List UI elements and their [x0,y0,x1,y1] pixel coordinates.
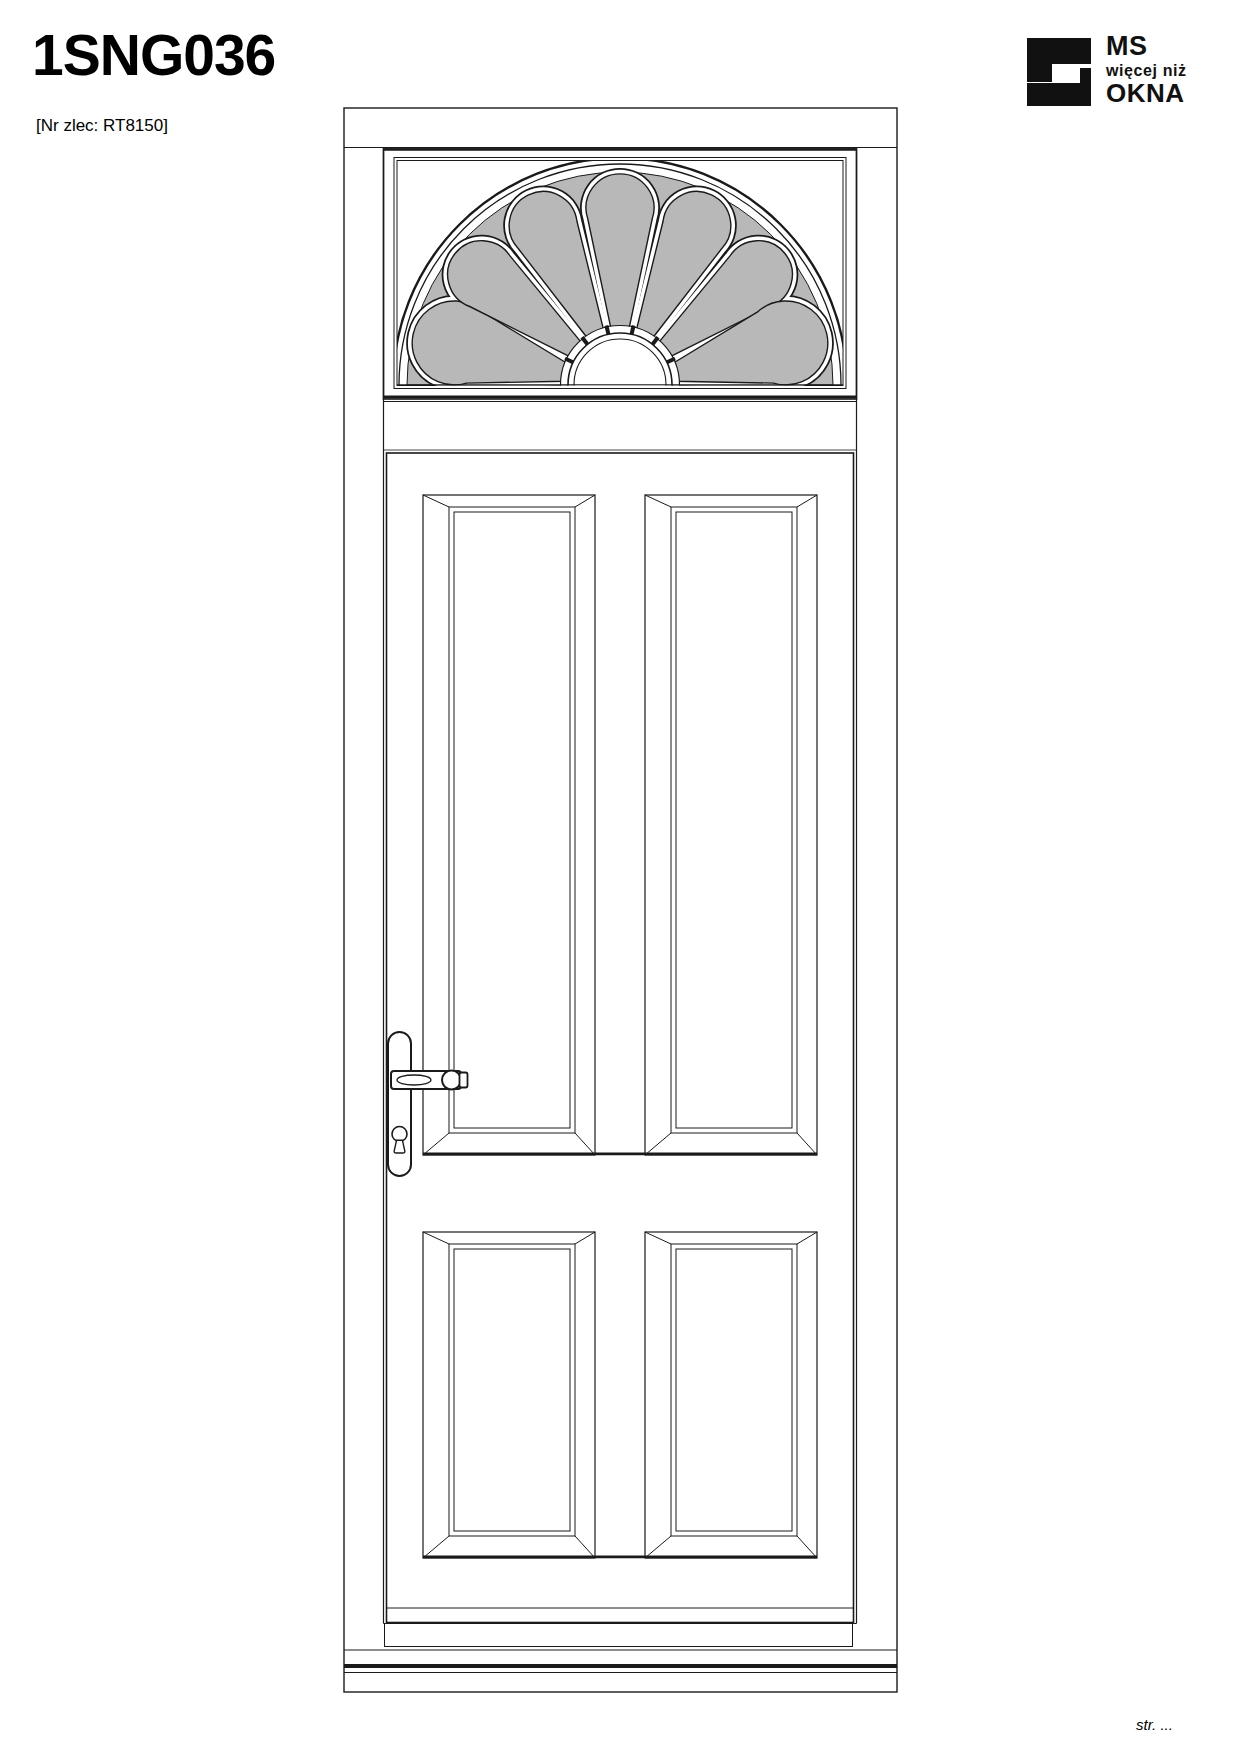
panel-field-upper-left [423,495,595,1155]
page-number: str. ... [1136,1716,1173,1733]
handle-lever-end [460,1073,468,1088]
door-leaf [384,450,857,1623]
handle-lever-cap [442,1071,461,1090]
panel-field-upper-right [645,495,817,1155]
door-technical-drawing [0,0,1240,1755]
transom-fanlight [383,149,857,445]
page: { "page": { "title": "1SNG036", "order_r… [0,0,1240,1755]
keyhole-slot [394,1140,405,1153]
threshold [344,1624,897,1673]
handle-backplate [388,1032,411,1176]
panel-field-lower-right [645,1232,817,1558]
keyhole-icon [392,1127,407,1142]
panel-field-lower-left [423,1232,595,1558]
